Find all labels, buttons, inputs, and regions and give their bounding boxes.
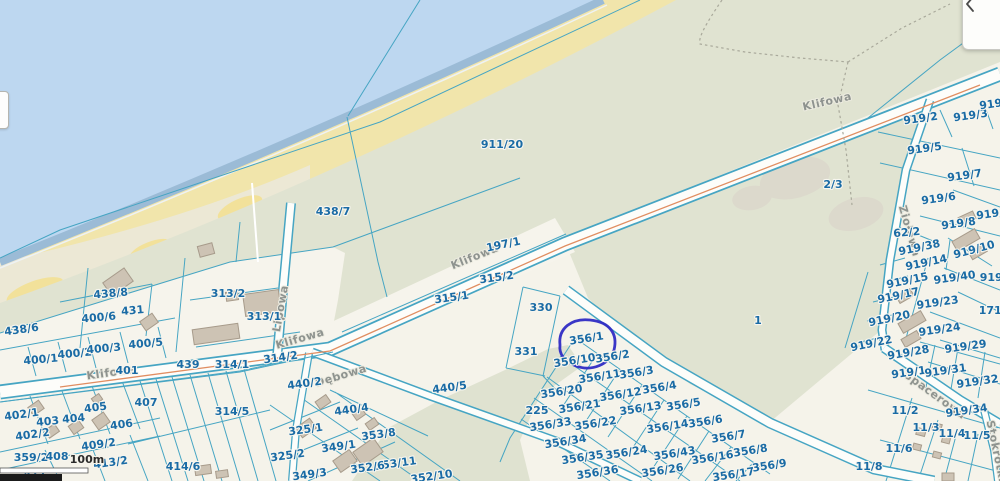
parcel-label: 401 bbox=[116, 364, 139, 377]
parcel-label: 1 bbox=[754, 314, 762, 327]
map-zoom-control-partial[interactable] bbox=[0, 91, 9, 129]
parcel-label: 314/5 bbox=[215, 405, 250, 418]
parcel-label: 11/6 bbox=[886, 442, 913, 455]
parcel-label: 330 bbox=[530, 301, 553, 314]
parcel-label: 331 bbox=[515, 345, 538, 358]
parcel-label: 414/6 bbox=[166, 460, 201, 473]
parcel-label: 313/1 bbox=[247, 310, 282, 323]
parcel-label: 11/8 bbox=[856, 460, 883, 473]
parcel-label: 225 bbox=[526, 404, 549, 417]
sidebar-collapse-button[interactable] bbox=[962, 0, 1000, 50]
parcel-label: 438/7 bbox=[316, 205, 351, 218]
parcel-label: 62/2 bbox=[893, 225, 921, 240]
map-viewport[interactable]: KlifowaKlifowaKlifowaKlifowaLipowaDębowa… bbox=[0, 0, 1000, 481]
parcel-label: 11/5 bbox=[964, 429, 991, 442]
parcel-label: 2/3 bbox=[823, 178, 842, 191]
building bbox=[942, 473, 954, 481]
parcel-label: 11/2 bbox=[892, 404, 919, 417]
parcel-label: 911/20 bbox=[481, 138, 524, 151]
parcel-label: 11/4 bbox=[939, 427, 966, 440]
parcel-label: 313/2 bbox=[211, 287, 246, 300]
parcel-label: 439 bbox=[177, 358, 200, 371]
parcel-label: 919/1 bbox=[980, 271, 1000, 284]
parcel-label: 171/1 bbox=[979, 304, 1000, 317]
building bbox=[216, 470, 229, 479]
chevron-left-icon bbox=[963, 0, 977, 14]
map-canvas[interactable]: KlifowaKlifowaKlifowaKlifowaLipowaDębowa… bbox=[0, 0, 1000, 481]
scale-label: 100m bbox=[70, 453, 104, 466]
parcel-label: 407 bbox=[135, 396, 158, 409]
parcel-label: 404 bbox=[62, 411, 86, 426]
parcel-label: 359/2 bbox=[14, 451, 49, 464]
parcel-label: 431 bbox=[121, 303, 145, 318]
building bbox=[912, 443, 921, 451]
parcel-label: 408 bbox=[46, 450, 69, 463]
parcel-label: 11/3 bbox=[913, 421, 940, 434]
building bbox=[932, 451, 941, 459]
parcel-label: 314/1 bbox=[215, 358, 250, 371]
